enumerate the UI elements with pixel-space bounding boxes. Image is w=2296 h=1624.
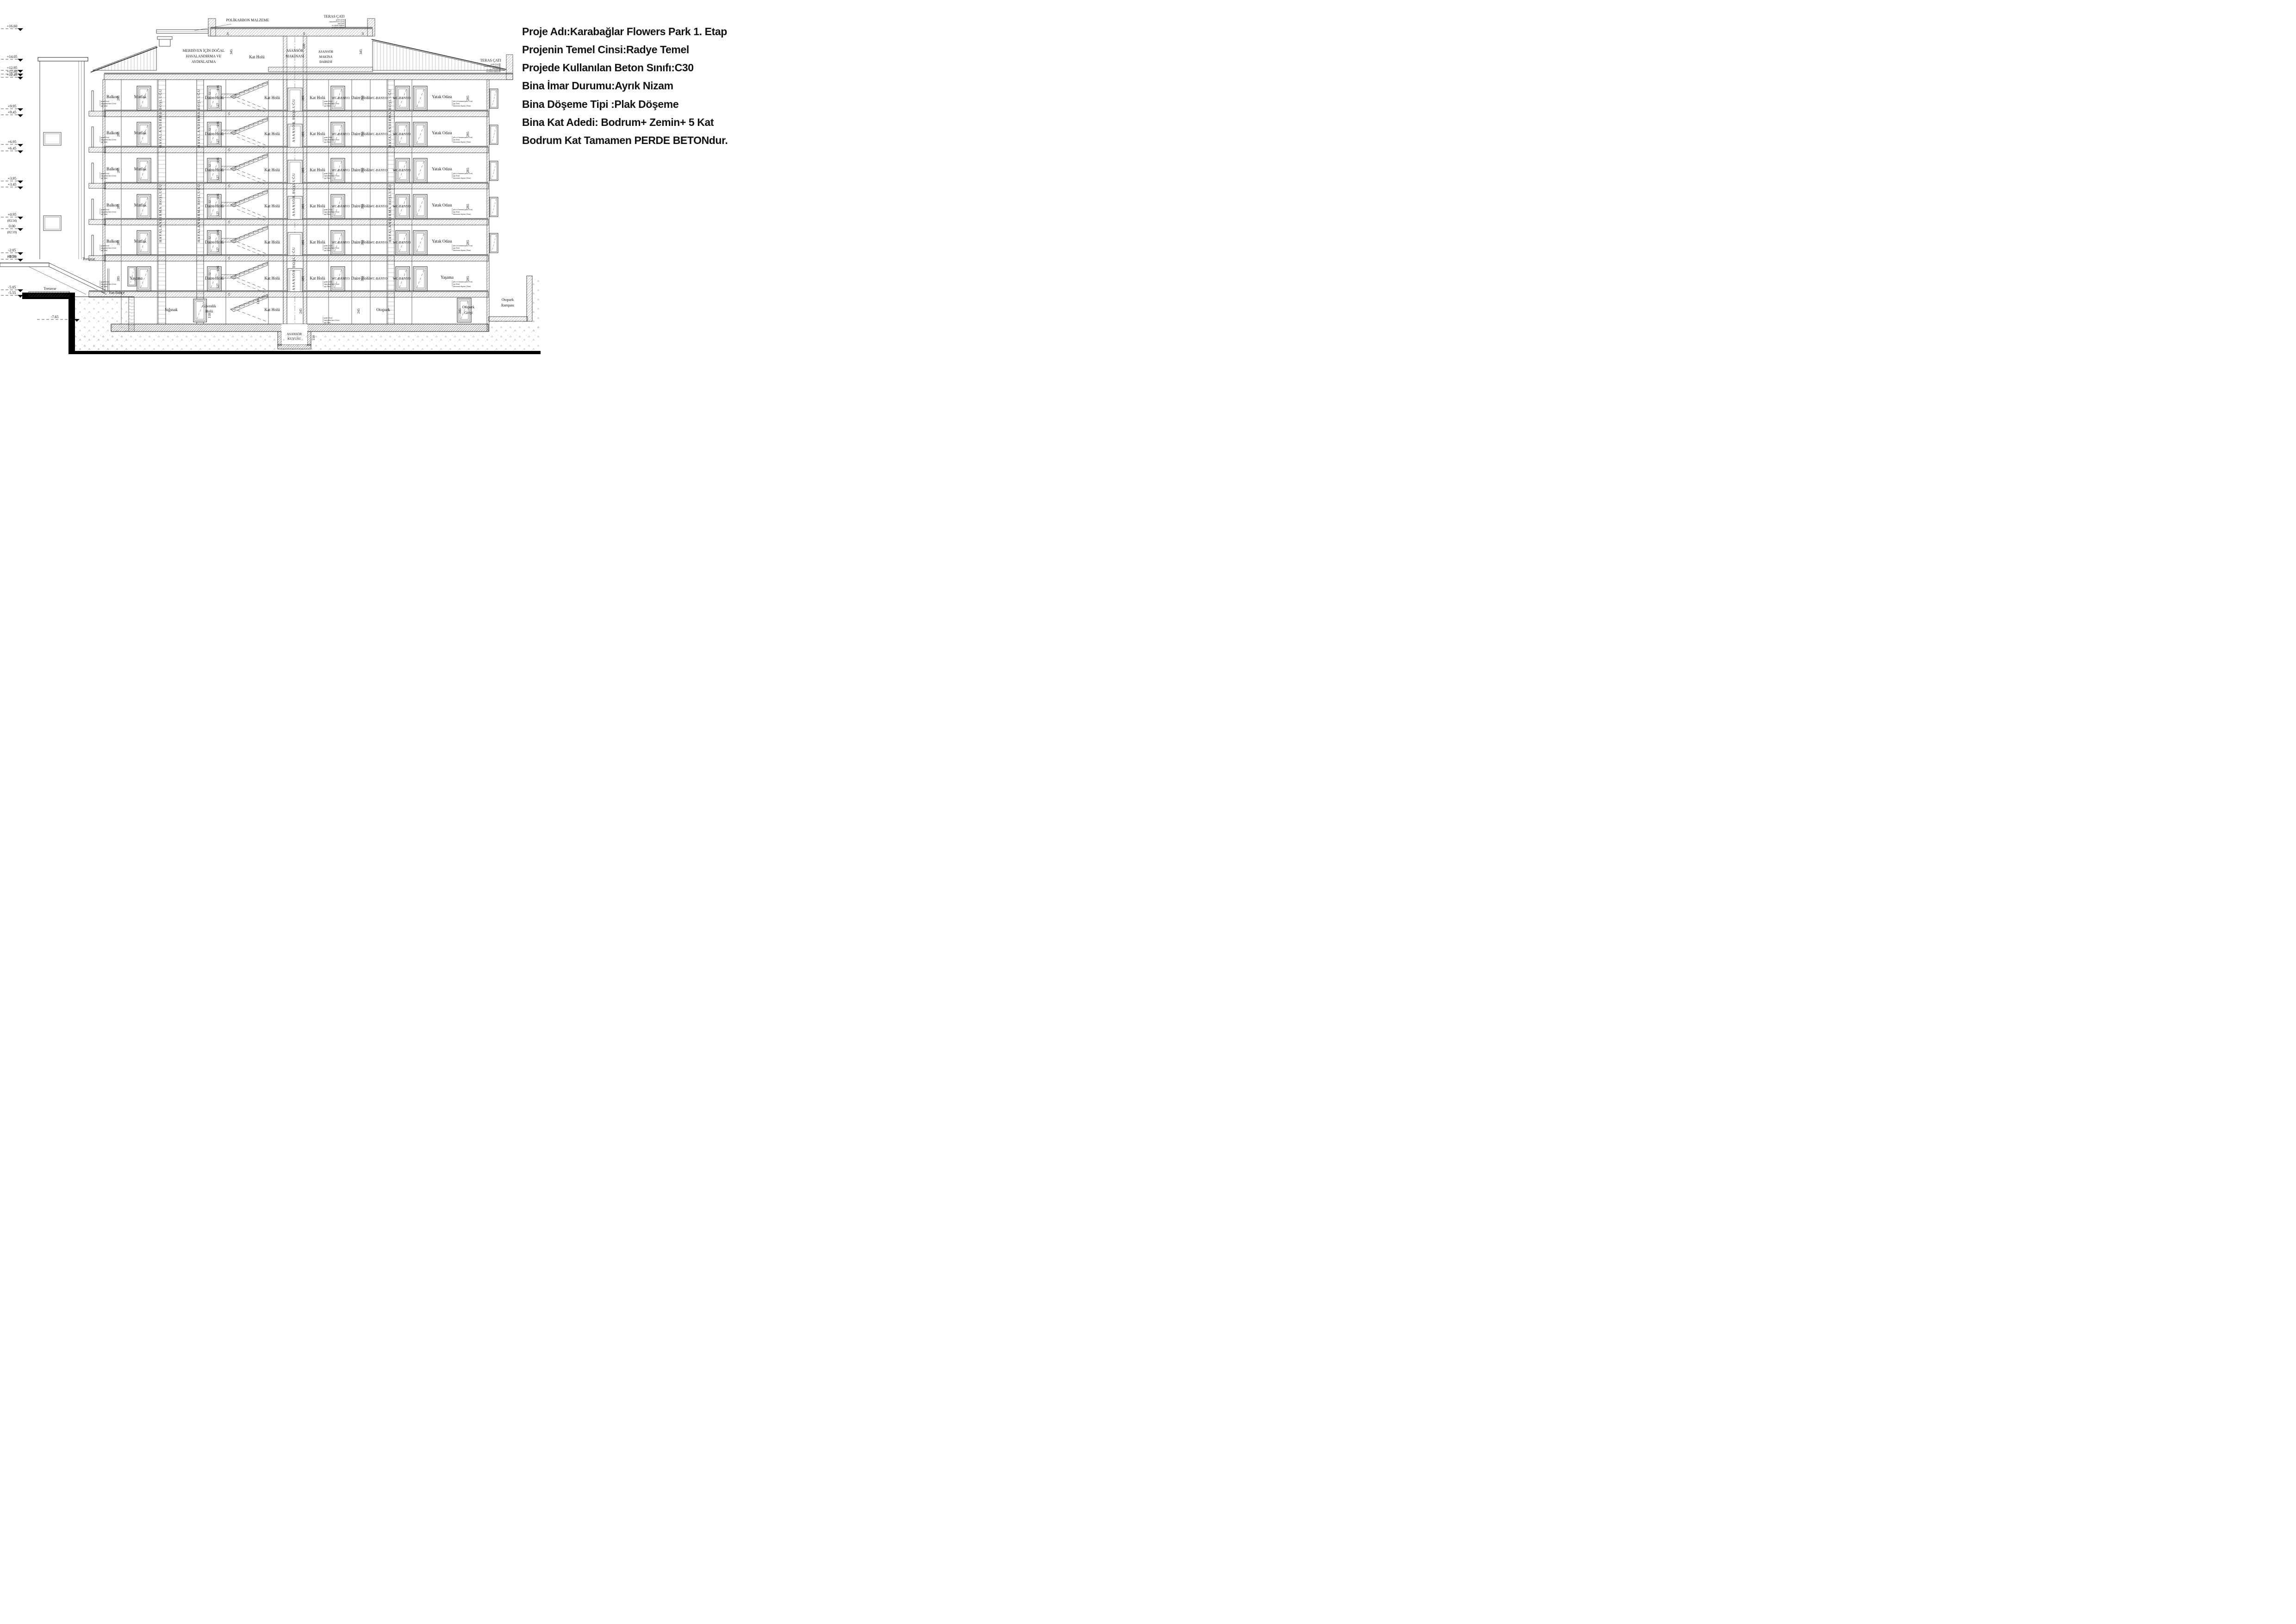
dimension: 285 (301, 240, 305, 245)
room-label-right: Yatak Odası (432, 94, 452, 99)
floor-layer-note: betonarme döşeme (16cm) (453, 213, 471, 215)
room-label-mutfak: Mutfak (134, 94, 147, 99)
elevation-marker: +12.45 (7, 73, 18, 77)
project-info-panel: Proje Adı:Karabağlar Flowers Park 1. Eta… (522, 26, 725, 153)
project-info-line: Projede Kullanılan Beton Sınıfı:C30 (522, 62, 725, 73)
floor-layer-note: şap (5cm) (101, 141, 108, 143)
dimension: 15 (228, 185, 231, 188)
floor-layer-note: yapıştırma harcı (2cm) (101, 139, 117, 141)
dimension: 20 (361, 32, 365, 36)
label-yan-bahce: Yan Bahçe (109, 291, 125, 295)
floor-layer-note: yapıştırma harcı (2cm) (324, 319, 340, 321)
dimension: 220 (302, 44, 306, 49)
project-info-line: Bodrum Kat Tamamen PERDE BETONdur. (522, 135, 725, 146)
dimension: 285 (116, 168, 120, 173)
label-tretuvar: Tretuvar (44, 287, 56, 291)
floor-layer-note: granit (2cm) (324, 281, 333, 283)
room-label-mutfak: Mutfak (134, 239, 147, 244)
label-asansor-boslugu: ASANSÖR BOŞLUĞU (291, 247, 296, 291)
room-label-mutfak: Mutfak (134, 203, 147, 207)
elevation-marker: +0.95 (8, 212, 17, 217)
floor-layer-note: şap (5cm) (324, 177, 331, 179)
floor-layer-note: granit (2cm) (101, 100, 110, 102)
label-asansor-boslugu: ASANSÖR BOŞLUĞU (291, 173, 296, 217)
room-label: WC-BANYO (393, 96, 411, 100)
room-label-otopark: Otopark (376, 307, 390, 312)
dimension: 285 (466, 168, 470, 173)
floor-layer-note: şap (5cm) (101, 105, 108, 107)
dimension: 245 (356, 308, 361, 314)
project-info-line: Proje Adı:Karabağlar Flowers Park 1. Eta… (522, 26, 725, 37)
floor-layer-note: yapıştırma harcı (2cm) (324, 139, 340, 141)
floor-layer-note: şap (5cm) (324, 105, 331, 107)
dimension: 127 (216, 103, 220, 108)
elevation-marker: +6.45 (8, 146, 17, 150)
floor-layer-note: betonarme döşeme (16cm) (453, 105, 471, 107)
label-makina-dairesi: ASANSÖR (318, 50, 334, 54)
floor-layer-note: betonarme döşeme (16cm) (453, 250, 471, 251)
elevation-marker: -5.05 (8, 285, 16, 289)
label-asansor-boslugu: ASANSÖR BOŞLUĞU (291, 99, 296, 143)
room-label-guvenlik: Holü (205, 309, 213, 313)
room-label: Kat Holü (249, 55, 265, 59)
floor-layer-note: şilte ve laminant parke (1cm) (453, 137, 473, 138)
floor-layer-note: şap (5cm) (324, 141, 331, 143)
dimension: 15 (228, 149, 231, 152)
elevation-alt: (82.59) (7, 231, 17, 234)
floor-layer-note: granit (2cm) (101, 245, 110, 247)
dimension: 285 (466, 240, 470, 245)
floor-layer-note: şap (5cm) (453, 103, 460, 105)
elevation-marker: -2.55 (8, 255, 16, 259)
dimension: 146 (216, 230, 220, 235)
floor-layer-note: şap (5cm) (324, 286, 331, 287)
room-label-otopark-girisi: Girişi (464, 311, 473, 315)
floor-layer-note: granit (2cm) (101, 281, 110, 283)
room-label: WC-BANYO (370, 96, 388, 100)
floor-layer-note: şap (5cm) (453, 247, 460, 249)
dimension: 146 (216, 194, 220, 199)
dimension: 285 (301, 276, 305, 281)
dimension: 12 (208, 128, 212, 131)
dimension: 285 (466, 131, 470, 137)
dimension: 285 (466, 276, 470, 281)
label-teras-cati: TERAS ÇATI (480, 58, 501, 62)
room-label: Daire Holü (205, 168, 224, 172)
floor-layer-note: şilte ve laminant parke (1cm) (453, 173, 473, 175)
elevation-marker: +6.95 (8, 140, 17, 144)
dimension: 20 (303, 32, 306, 36)
room-label: WC-BANYO (370, 205, 388, 208)
dimension: 345 (359, 49, 363, 55)
dimension: 285 (466, 204, 470, 209)
label-havalandirma-boslugu: HAVALANDIRMA BOŞLUĞU (196, 183, 201, 242)
dimension: 146 (216, 157, 220, 163)
room-label: WC-BANYO (393, 132, 411, 136)
label-havalandirma-boslugu: HAVALANDIRMA BOŞLUĞU (196, 88, 201, 147)
dimension: 15 (228, 257, 231, 260)
floor-layer-note: yapıştırma harcı (2cm) (101, 283, 117, 285)
elevation-marker: +16.60 (7, 24, 18, 28)
room-label: Kat Holü (264, 240, 280, 244)
floor-layer-note: yapıştırma harcı (2cm) (324, 247, 340, 249)
floor-layer-note: şilte ve laminant parke (1cm) (453, 209, 473, 211)
room-label: WC-BANYO (393, 277, 411, 281)
room-label: WC-BANYO (332, 132, 350, 136)
dimension: 20 (226, 32, 230, 36)
floor-layer-note: granit (2cm) (324, 209, 333, 211)
label-merdiven-note: HAVALANDIRMA VE (186, 54, 221, 58)
dimension: 146 (216, 121, 220, 127)
dimension: 285 (301, 131, 305, 137)
dimension: 285 (360, 168, 364, 173)
dimension: 123 (256, 299, 260, 305)
room-label: Kat Holü (310, 95, 325, 100)
floor-layer-note: şap (5cm) (453, 175, 460, 177)
room-label: Kat Holü (310, 276, 325, 281)
dimension: 15 (228, 112, 231, 116)
dimension: 127 (216, 283, 220, 289)
floor-layer-note: betonarme döşeme (16cm) (453, 177, 471, 179)
dimension: 146 (216, 85, 220, 91)
dimension: 285 (360, 276, 364, 281)
floor-layer-note: şap (5cm) (324, 250, 331, 251)
floor-layer-note: şap (5cm) (101, 213, 108, 215)
floor-layer-note: granit (2cm) (101, 209, 110, 211)
room-label: Kat Holü (264, 307, 280, 312)
room-label: Kat Holü (264, 95, 280, 100)
room-label-right: Yatak Odası (432, 167, 452, 171)
room-label: WC-BANYO (332, 169, 350, 172)
label-otopark-rampasi: Rampası (501, 303, 515, 307)
label-polikarbon: POLİKARBON MALZEME (226, 18, 269, 22)
floor-layer-note: şap (5cm) (453, 283, 460, 285)
dimension: 285 (116, 95, 120, 101)
dimension: 285 (360, 131, 364, 137)
floor-layer-note: yapıştırma harcı (2cm) (101, 247, 117, 249)
room-label: Kat Holü (264, 276, 280, 281)
dimension: 15 (228, 293, 231, 296)
floor-layer-note: şap (5cm) (453, 211, 460, 213)
dimension: 245 (458, 308, 462, 314)
dimension: 285 (360, 240, 364, 245)
dimension: 127 (216, 175, 220, 181)
dimension: 285 (360, 204, 364, 209)
label-havalandirma-boslugu: HAVALANDIRMA BOŞLUĞU (158, 88, 162, 147)
room-label: WC-BANYO (332, 241, 350, 244)
room-label: WC-BANYO (393, 169, 411, 172)
room-label-yasama: Yaşama (130, 276, 143, 281)
dimension: 15 (228, 221, 231, 224)
label-teras-cati: TERAS ÇATI (324, 14, 344, 19)
dimension: 127 (216, 247, 220, 253)
label-asansor-kuyusu: KUYUSU (287, 337, 301, 341)
dimension: 12 (208, 273, 212, 276)
elevation-marker: +14.05 (7, 55, 18, 59)
room-label: Daire Holü (205, 95, 224, 100)
room-label: Kat Holü (310, 240, 325, 244)
room-label-otopark-girisi: Otopark (462, 305, 474, 309)
floor-layer-note: betonarme döşeme (16cm) (453, 286, 471, 287)
dimension: 12 (208, 164, 212, 168)
room-label-mutfak: Mutfak (134, 131, 147, 135)
elevation-marker: 0.00 (9, 224, 15, 228)
room-label: Kat Holü (310, 204, 325, 208)
label-havalandirma-boslugu: HAVALANDIRMA BOŞLUĞU (387, 183, 392, 242)
floor-layer-note: yapıştırma harcı (2cm) (324, 103, 340, 105)
dimension: 146 (216, 266, 220, 271)
room-label: Daire Holü (205, 131, 224, 136)
room-label: Kat Holü (264, 168, 280, 172)
room-label-right: Yatak Odası (432, 203, 452, 207)
room-label-guvenlik: Güvenlik (202, 304, 216, 308)
floor-layer-note: yapıştırma harcı (2cm) (101, 175, 117, 177)
floor-layer-note: granit (2cm) (324, 317, 333, 319)
floor-layer-note: şap (5cm) (101, 286, 108, 287)
room-label: WC-BANYO (370, 241, 388, 244)
elevation-marker: +3.45 (8, 182, 17, 187)
dimension: 285 (301, 168, 305, 173)
floor-layer-note: granit (2cm) (101, 137, 110, 138)
room-label: Kat Holü (264, 131, 280, 136)
room-label: Kat Holü (264, 204, 280, 208)
label-makina-dairesi: MAKİNA (319, 55, 333, 59)
room-label: WC-BANYO (370, 277, 388, 281)
dimension: 285 (116, 240, 120, 245)
dimension: 285 (116, 131, 120, 137)
floor-layer-note: granit (2cm) (101, 173, 110, 175)
label-merdiven-note: AYDINLATMA (192, 60, 216, 64)
floor-layer-note: şilte ve laminant parke (1cm) (453, 100, 473, 102)
dimension: 127 (216, 211, 220, 217)
room-label-right: Yaşama (441, 275, 454, 280)
teras-layer-note: ısı yalıtım tabakası (332, 26, 344, 28)
dimension: 12 (208, 237, 212, 240)
room-label-siginak: Sığınak (165, 307, 178, 312)
room-label: WC-BANYO (332, 96, 350, 100)
floor-layer-note: yapıştırma harcı (2cm) (324, 211, 340, 213)
floor-layer-note: granit (2cm) (324, 137, 333, 138)
floor-layer-note: yapıştırma harcı (2cm) (324, 283, 340, 285)
floor-layer-note: şap (5cm) (101, 177, 108, 179)
dimension: 285 (360, 95, 364, 101)
floor-layer-note: yapıştırma harcı (2cm) (101, 103, 117, 105)
dimension: 12 (208, 200, 212, 204)
elevation-marker: -5.55 (8, 291, 16, 295)
floor-layer-note: yapıştırma harcı (2cm) (324, 175, 340, 177)
dimension: 245 (299, 308, 303, 314)
dimension: 110 (207, 313, 212, 318)
dimension: 285 (116, 204, 120, 209)
room-label: WC-BANYO (393, 241, 411, 244)
label-havalandirma-boslugu: HAVALANDIRMA BOŞLUĞU (158, 183, 162, 242)
label-asansor-kuyusu: ASANSÖR (287, 332, 302, 336)
elevation-alt: (83.54) (7, 219, 17, 223)
floor-layer-note: şap (5cm) (101, 250, 108, 251)
floor-layer-note: şilte ve laminant parke (1cm) (453, 245, 473, 247)
floor-layer-note: şap (5cm) (324, 213, 331, 215)
room-label: Kat Holü (310, 131, 325, 136)
floor-layer-note: yapıştırma harcı (2cm) (101, 211, 117, 213)
room-label: WC-BANYO (370, 132, 388, 136)
room-label: Daire Holü (205, 204, 224, 208)
teras-layer-note: ısı yalıtım tabakası (486, 71, 499, 73)
floor-layer-note: şilte ve laminant parke (1cm) (453, 281, 473, 283)
dimension: 127 (216, 139, 220, 144)
elevation-marker: +9.95 (8, 104, 17, 108)
dimension: 285 (301, 95, 305, 101)
room-label-right: Yatak Odası (432, 239, 452, 244)
room-label-mutfak: Mutfak (134, 167, 147, 171)
dimension: 285 (466, 95, 470, 101)
label-asansor-makinasi: ASANSÖR (286, 49, 304, 53)
floor-layer-note: granit (2cm) (324, 173, 333, 175)
floor-layer-note: granit (2cm) (324, 100, 333, 102)
elevation-marker: +9.45 (8, 110, 17, 114)
floor-layer-note: betonarme döşeme (16cm) (453, 141, 471, 143)
label-merdiven-note: MERDİVEN İÇİN DOĞAL (183, 48, 225, 53)
room-label: Daire Holü (205, 276, 224, 281)
label-havalandirma-boslugu: HAVALANDIRMA BOŞLUĞU (387, 88, 392, 147)
room-label: WC-BANYO (332, 277, 350, 281)
room-label-right: Yatak Odası (432, 131, 452, 135)
floor-layer-note: şap (5cm) (324, 322, 331, 324)
room-label: Kat Holü (310, 168, 325, 172)
project-info-line: Bina Döşeme Tipi :Plak Döşeme (522, 99, 725, 110)
room-label: WC-BANYO (370, 169, 388, 172)
room-label: WC-BANYO (393, 205, 411, 208)
project-info-line: Projenin Temel Cinsi:Radye Temel (522, 44, 725, 55)
floor-layer-note: granit (2cm) (324, 245, 333, 247)
dimension: 150 (311, 335, 316, 341)
label-tretuvar: Tretuvar (82, 257, 95, 261)
room-label: Daire Holü (205, 240, 224, 244)
dimension: 345 (229, 49, 233, 55)
project-info-line: Bina Kat Adedi: Bodrum+ Zemin+ 5 Kat (522, 117, 725, 128)
label-otopark-rampasi: Otopark (502, 298, 514, 302)
dimension: 285 (116, 276, 120, 281)
elevation-marker: -2.05 (8, 248, 16, 252)
dimension: 285 (301, 204, 305, 209)
label-asansor-makinasi: MAKİNASI (286, 54, 304, 58)
room-label: WC-BANYO (332, 205, 350, 208)
project-info-line: Bina İmar Durumu:Ayrık Nizam (522, 80, 725, 91)
elevation-marker: +3.95 (8, 176, 17, 181)
label-makina-dairesi: DAİRESİ (319, 60, 332, 64)
elevation-marker: -7.65 (51, 315, 59, 319)
floor-layer-note: şap (5cm) (453, 139, 460, 141)
dimension: 12 (208, 92, 212, 95)
